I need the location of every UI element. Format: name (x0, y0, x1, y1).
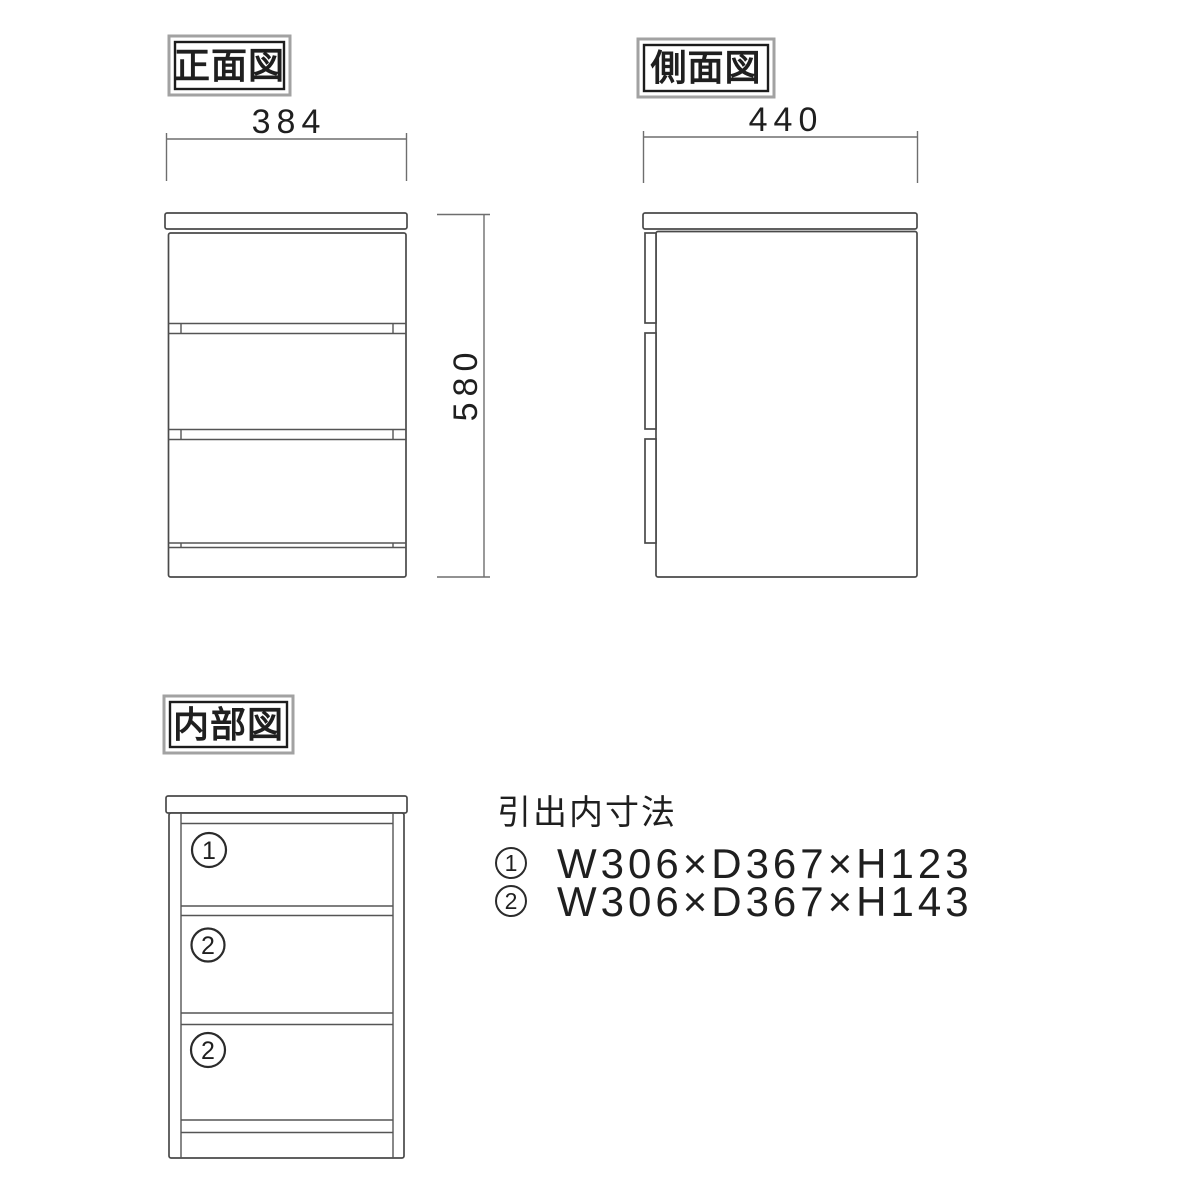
front-width-dimension: 384 (167, 103, 407, 181)
internal-view-label-box: 内部図 (164, 696, 293, 753)
internal-compartment-2-marker: 2 (192, 929, 225, 962)
side-cabinet-drawing (643, 213, 917, 577)
internal-compartment-1-marker: 1 (192, 833, 226, 867)
front-height-dimension-value: 580 (447, 347, 485, 422)
furniture-dimension-diagram: 正面図 384 580 (0, 0, 1200, 1200)
side-view-label-box: 側面図 (638, 39, 774, 97)
internal-compartment-3-marker: 2 (191, 1033, 225, 1067)
side-top-panel (643, 213, 917, 229)
side-view-label: 側面図 (649, 47, 761, 88)
side-depth-dimension-value: 440 (749, 101, 824, 139)
internal-view: 内部図 1 2 (164, 696, 407, 1158)
side-depth-dimension: 440 (644, 101, 918, 183)
side-drawer-front-profile-2 (645, 333, 656, 429)
side-view: 側面図 440 (638, 39, 918, 577)
side-cabinet-body (656, 232, 917, 578)
front-cabinet-body (169, 233, 407, 577)
front-cabinet-drawing (165, 213, 407, 577)
front-view-label: 正面図 (174, 45, 285, 86)
front-top-panel (165, 213, 407, 229)
compartment-1-number: 1 (202, 837, 216, 865)
front-view: 正面図 384 580 (165, 36, 490, 577)
compartment-3-number: 2 (201, 1037, 215, 1065)
internal-view-label: 内部図 (173, 704, 284, 745)
drawing-canvas: 正面図 384 580 (0, 0, 1200, 1200)
spec-item-2-dimensions: W306×D367×H143 (557, 878, 973, 925)
side-drawer-front-profile-1 (645, 233, 656, 323)
front-view-label-box: 正面図 (169, 36, 290, 95)
drawer-spec-block: 引出内寸法 1 W306×D367×H123 2 W306×D367×H143 (496, 794, 973, 925)
internal-top-panel (166, 796, 407, 813)
drawing-root: 正面図 384 580 (164, 36, 973, 1158)
front-height-dimension: 580 (437, 215, 490, 578)
spec-item-2-number: 2 (505, 888, 518, 914)
drawer-spec-item-2: 2 W306×D367×H143 (496, 878, 973, 925)
spec-item-1-number: 1 (505, 850, 518, 876)
internal-cabinet-drawing: 1 2 2 (166, 796, 407, 1158)
drawer-spec-title: 引出内寸法 (497, 794, 677, 832)
front-width-dimension-value: 384 (252, 103, 327, 141)
compartment-2-number: 2 (201, 932, 215, 960)
side-drawer-front-profile-3 (645, 439, 656, 543)
